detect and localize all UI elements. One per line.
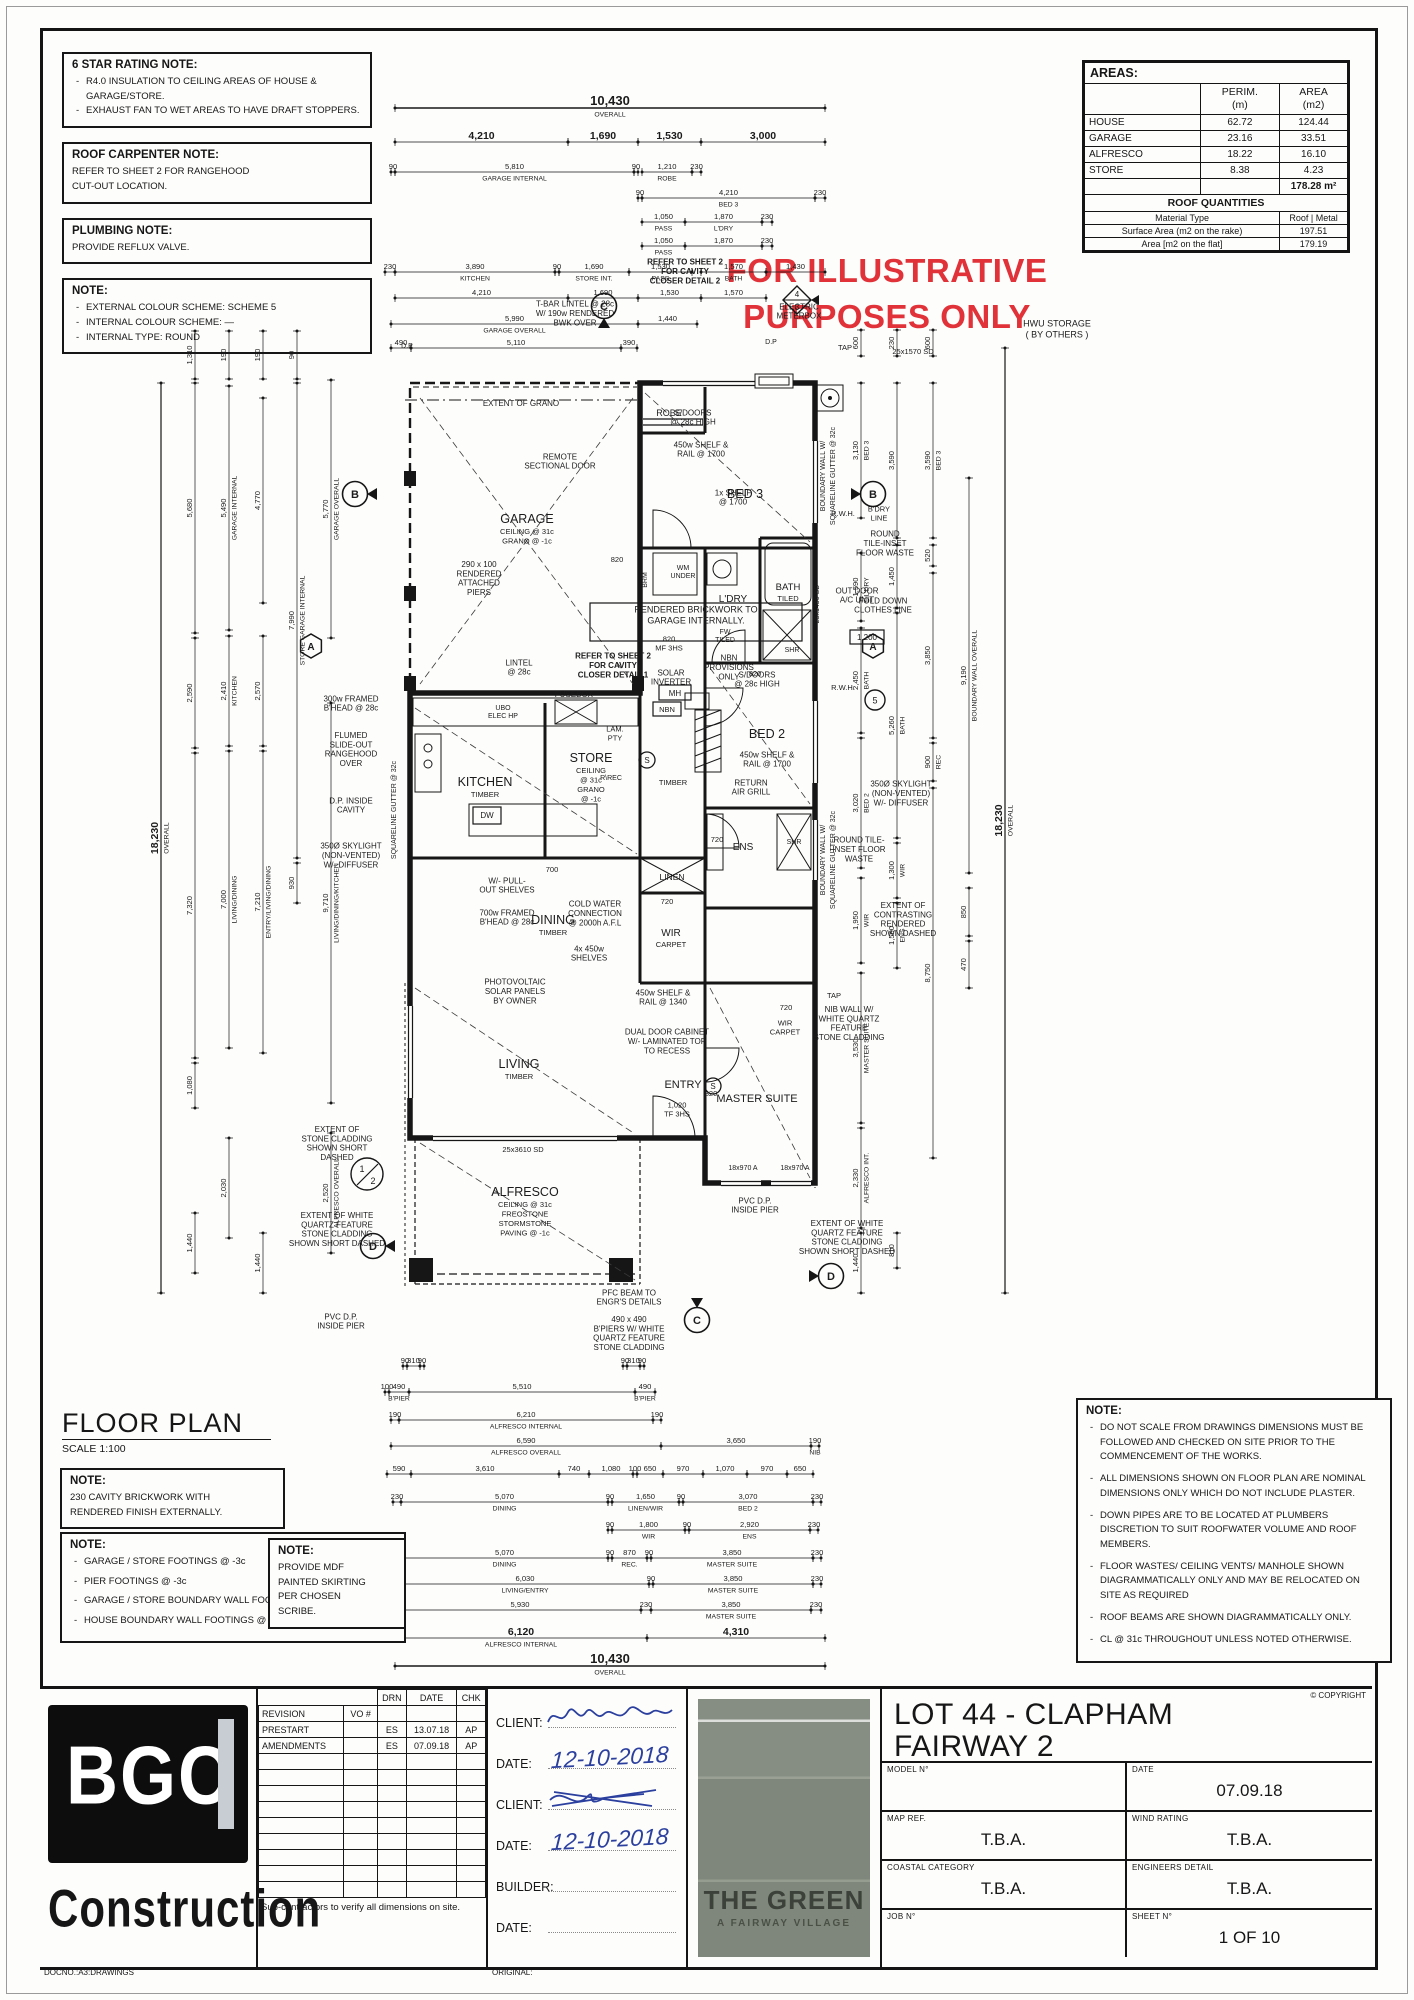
marker-letter: B <box>351 489 359 501</box>
dim-label: 930 <box>287 877 296 890</box>
dim-sublabel: KITCHEN <box>460 276 490 283</box>
revision-row: PRESTARTES13.07.18AP <box>259 1722 486 1738</box>
dim-label: 1,530 <box>656 130 682 142</box>
marker-letter: C <box>600 301 608 313</box>
project-field-label: ENGINEERS DETAIL <box>1132 1863 1214 1872</box>
annotation: S/DOORS@ 28c HIGH <box>670 408 716 426</box>
dim-label: 230 <box>810 1600 823 1609</box>
dim-sublabel: L'DRY <box>864 577 871 597</box>
project-field-label: SHEET N° <box>1132 1912 1172 1921</box>
note-skirting-body: PROVIDE MDFPAINTED SKIRTINGPER CHOSENSCR… <box>278 1561 396 1620</box>
annotation: ROUND TILE-INSET FLOORWASTE <box>832 836 885 864</box>
dim-sublabel: BATH <box>725 276 743 283</box>
dim-label: 3,610 <box>475 1464 494 1473</box>
room-sublabel: TIMBER <box>539 928 568 937</box>
original-label: ORIGINAL: <box>492 1968 532 1977</box>
builder-logo-cell: BGC Construction <box>40 1689 258 1967</box>
annotation: R\REC <box>600 775 622 782</box>
dim-label: 5,070 <box>495 1548 514 1557</box>
note-line: SCRIBE. <box>278 1605 396 1620</box>
dim-label: 18,230 <box>149 822 161 854</box>
annotation: 450w SHELF &RAIL @ 1700 <box>740 750 795 768</box>
copyright-text: © COPYRIGHT <box>1310 1691 1366 1700</box>
project-field-label: MODEL N° <box>887 1765 929 1774</box>
marker-letter: B <box>869 489 877 501</box>
dim-label: 230 <box>761 212 774 221</box>
project-field-label: WIND RATING <box>1132 1814 1188 1823</box>
room-sublabel: CEILING <box>576 766 606 775</box>
dim-label: 90 <box>418 1356 426 1365</box>
dim-label: 3,000 <box>750 130 776 142</box>
floor-plan-scale: SCALE 1:100 <box>62 1443 271 1455</box>
dim-sublabel: BATH <box>864 672 871 690</box>
dim-label: 230 <box>690 162 703 171</box>
annotation: COLD WATERCONNECTION@ 2000h A.F.L <box>568 900 622 928</box>
dim-sublabel: ALFRESCO INT. <box>864 1153 871 1204</box>
dim-label: 4,210 <box>719 188 738 197</box>
dim-label: 2,520 <box>321 1183 330 1202</box>
client-field-row: DATE:12-10-2018 <box>496 1818 678 1859</box>
annotation: D.P. INSIDECAVITY <box>329 796 372 814</box>
room-label-master-suite: MASTER SUITE <box>716 1093 797 1105</box>
project-title-line1: LOT 44 - CLAPHAM <box>894 1699 1372 1731</box>
dim-label: 6,210 <box>516 1410 535 1419</box>
dim-sublabel: DINING <box>493 1562 517 1569</box>
project-field-value: 1 OF 10 <box>1127 1928 1372 1948</box>
docno-text: DOCNO.:A3:DRAWINGS <box>44 1968 134 1977</box>
dim-label: 6,030 <box>515 1574 534 1583</box>
dim-sublabel: L'DRY <box>714 226 734 233</box>
dim-label: 1,570 <box>724 288 743 297</box>
dim-label: 230 <box>811 1492 824 1501</box>
areas-total: 178.28 m² <box>1280 179 1348 195</box>
dim-label: 90 <box>606 1520 614 1529</box>
dim-label: 1,690 <box>593 288 612 297</box>
annotation: 820MF 3HS <box>655 635 683 653</box>
room-sublabel: GRANO @ -1c <box>502 537 552 546</box>
marker-letter: 4 <box>795 290 800 299</box>
annotation: 1x SHELF@ 1700 <box>715 488 752 506</box>
dim-label: 5,070 <box>495 1492 514 1501</box>
annotation: 18x970 A <box>780 1165 810 1172</box>
dim-label: 4,210 <box>472 288 491 297</box>
room-label-alfresco: ALFRESCO <box>491 1185 559 1199</box>
dim-sublabel: GARAGE INTERNAL <box>482 176 547 183</box>
dim-label: 190 <box>389 1410 402 1419</box>
dim-label: 90 <box>553 262 561 271</box>
project-field: MAP REF.T.B.A. <box>882 1812 1127 1861</box>
client-sign-cell: CLIENT:DATE:12-10-2018CLIENT:DATE:12-10-… <box>488 1689 688 1967</box>
dim-sublabel: ALFRESCO OVERALL <box>491 1450 561 1457</box>
annotation: HWU STORAGE( BY OTHERS ) <box>1023 319 1091 340</box>
project-field-label: MAP REF. <box>887 1814 926 1823</box>
note-item: DO NOT SCALE FROM DRAWINGS DIMENSIONS MU… <box>1088 1421 1382 1465</box>
room-label-living: LIVING <box>499 1057 540 1071</box>
project-field: COASTAL CATEGORYT.B.A. <box>882 1861 1127 1910</box>
roof-material-label: Material Type <box>1085 212 1280 225</box>
annotation: BRM <box>642 572 649 588</box>
annotation: D.P <box>765 339 777 346</box>
dim-label: 7,990 <box>287 611 296 630</box>
roof-material-value: Roof | Metal <box>1280 212 1348 225</box>
dim-sublabel: ROBE <box>657 176 677 183</box>
dim-label: 7,320 <box>185 896 194 915</box>
estate-logo-cell: THE GREEN A FAIRWAY VILLAGE <box>688 1689 882 1967</box>
project-field-value: T.B.A. <box>882 1879 1125 1899</box>
annotation: 700w FRAMEDB'HEAD @ 28c <box>479 908 534 926</box>
dim-sublabel: OVERALL <box>594 1670 626 1677</box>
drawing-sheet: 6 STAR RATING NOTE:R4.0 INSULATION TO CE… <box>0 0 1414 2000</box>
dim-label: 2,030 <box>219 1178 228 1197</box>
room-sublabel: @ 31c <box>580 776 602 785</box>
annotation: 450w SHELF &RAIL @ 1340 <box>636 988 691 1006</box>
the-green-logo: THE GREEN A FAIRWAY VILLAGE <box>698 1699 870 1957</box>
client-signature <box>544 1702 684 1732</box>
dim-sublabel: OVERALL <box>594 112 626 119</box>
dim-label: 490 <box>639 1382 652 1391</box>
dim-sublabel: BOUNDARY WALL OVERALL <box>972 630 979 722</box>
dim-sublabel: ENTRY/LIVING/DINING <box>266 866 273 939</box>
annotation: NIB WALL W/WHITE QUARTZFEATURESTONE CLAD… <box>814 1005 885 1042</box>
annotation: DUAL DOOR CABINETW/- LAMINATED TOPTO REC… <box>625 1028 709 1056</box>
revision-table-cell: DRNDATECHKREVISIONVO #PRESTARTES13.07.18… <box>258 1689 488 1967</box>
dim-label: 1,690 <box>590 130 616 142</box>
project-field-value: T.B.A. <box>1127 1830 1372 1850</box>
dim-label: 1,210 <box>657 162 676 171</box>
project-field-label: DATE <box>1132 1765 1154 1774</box>
dim-label: 90 <box>645 1548 653 1557</box>
roof-row: Area [m2 on the flat]179.19 <box>1085 238 1348 251</box>
dim-sublabel: STORE GARAGE INTERNAL <box>300 575 307 665</box>
project-field: SHEET N°1 OF 10 <box>1127 1910 1372 1957</box>
dim-label: 970 <box>761 1464 774 1473</box>
annotation: SHR <box>785 647 800 654</box>
project-field: JOB N° <box>882 1910 1127 1957</box>
dim-label: 90 <box>632 162 640 171</box>
dim-label: 600 <box>851 337 860 350</box>
client-field-row: CLIENT: <box>496 1695 678 1736</box>
dim-sublabel: LINEN/WIR <box>628 1506 663 1513</box>
room-sublabel: STORMSTONE <box>499 1219 552 1228</box>
dim-label: 100 <box>381 1382 394 1391</box>
client-signature <box>544 1784 684 1814</box>
project-info-cell: © COPYRIGHT LOT 44 - CLAPHAM FAIRWAY 2 M… <box>882 1689 1372 1967</box>
annotation: PVC D.P.INSIDE PIER <box>317 1312 365 1330</box>
dim-sublabel: OVERALL <box>164 822 171 854</box>
dim-sublabel: BED 3 <box>864 440 871 460</box>
bgc-logo-bar <box>218 1719 234 1829</box>
dim-label: 870 <box>623 1548 636 1557</box>
dim-label: 3,890 <box>465 262 484 271</box>
project-title: LOT 44 - CLAPHAM FAIRWAY 2 <box>882 1689 1372 1763</box>
dim-sublabel: ALFRESCO INTERNAL <box>490 1424 562 1431</box>
dim-label: 90 <box>606 1548 614 1557</box>
dim-label: 1,530 <box>660 288 679 297</box>
dim-sublabel: WIR <box>864 914 871 927</box>
dim-sublabel: KITCHEN <box>232 676 239 706</box>
client-field-line[interactable] <box>548 1891 676 1892</box>
annotation: FLUMEDSLIDE-OUTRANGEHOODOVER <box>325 731 378 768</box>
client-field-label: DATE: <box>496 1757 532 1771</box>
room-label-entry: ENTRY <box>664 1079 702 1091</box>
dim-sublabel: REC. <box>621 1562 637 1569</box>
dim-label: 3,530 <box>851 1038 860 1057</box>
dim-label: 90 <box>647 1574 655 1583</box>
project-field-label: COASTAL CATEGORY <box>887 1863 975 1872</box>
dim-label: 1,430 <box>786 262 805 271</box>
annotation: 490 x 490B'PIERS W/ WHITEQUARTZ FEATURES… <box>593 1315 665 1352</box>
dim-label: 2,590 <box>185 683 194 702</box>
annotation: 450w SHELF &RAIL @ 1700 <box>674 440 729 458</box>
dim-label: 590 <box>393 1464 406 1473</box>
annotation: 25x1450 SD <box>814 585 821 624</box>
dim-label: 2,330 <box>851 1168 860 1187</box>
dim-label: 230 <box>640 1600 653 1609</box>
dim-sublabel: BED 2 <box>738 1506 758 1513</box>
dim-sublabel: MASTER SUITE <box>707 1562 758 1569</box>
marker-letter: C <box>693 1315 701 1327</box>
revision-row: AMENDMENTSES07.09.18AP <box>259 1738 486 1754</box>
project-field: MODEL N° <box>882 1763 1127 1812</box>
dim-label: 3,850 <box>723 1574 742 1583</box>
dim-label: 850 <box>959 906 968 919</box>
dim-sublabel: ALFRESCO OVERALL <box>334 1158 341 1228</box>
note-line: PAINTED SKIRTING <box>278 1576 396 1591</box>
annotation: TAP <box>827 991 841 1000</box>
dim-label: 6,590 <box>516 1436 535 1445</box>
dim-label: 7,000 <box>219 890 228 909</box>
dim-sublabel: B'PIER <box>634 1396 656 1403</box>
dim-label: 2,410 <box>219 681 228 700</box>
dim-label: 390 <box>623 338 636 347</box>
annotation: BOUNDARY WALL W/ <box>820 825 827 895</box>
floor-plan-title: FLOOR PLAN <box>62 1408 271 1440</box>
dim-sublabel: STORE INT. <box>575 276 612 283</box>
room-sublabel: TIMBER <box>505 1072 534 1081</box>
project-field-value: T.B.A. <box>1127 1879 1372 1899</box>
dim-label: 190 <box>809 1436 822 1445</box>
client-field-row: CLIENT: <box>496 1777 678 1818</box>
dim-label: 740 <box>568 1464 581 1473</box>
note-item: ALL DIMENSIONS SHOWN ON FLOOR PLAN ARE N… <box>1088 1472 1382 1501</box>
the-green-title: THE GREEN <box>704 1885 865 1916</box>
annotation: SQUARELINE GUTTER @ 32c <box>830 426 837 525</box>
floor-plan-heading: FLOOR PLAN SCALE 1:100 <box>62 1408 271 1455</box>
dim-sublabel: BED 3 <box>936 450 943 470</box>
annotation: 1,020TF 3HS <box>664 1101 690 1119</box>
note-line: PROVIDE MDF <box>278 1561 396 1576</box>
dim-label: 1,070 <box>715 1464 734 1473</box>
annotation: SQUARELINE GUTTER @ 32c <box>830 810 837 909</box>
project-field: DATE07.09.18 <box>1127 1763 1372 1812</box>
annotation: LAM.PTY <box>606 725 624 743</box>
note-skirting: NOTE: PROVIDE MDFPAINTED SKIRTINGPER CHO… <box>268 1538 406 1629</box>
roof-quantities-title: ROOF QUANTITIES <box>1085 195 1348 212</box>
marker-letter: 2 <box>370 1176 375 1186</box>
annotation: PHOTOVOLTAICSOLAR PANELSBY OWNER <box>484 978 546 1006</box>
dim-label: 1,050 <box>654 236 673 245</box>
dim-sublabel: ENS <box>743 1534 757 1541</box>
dim-label: 90 <box>606 1492 614 1501</box>
dim-label: 100 <box>629 1464 642 1473</box>
client-field-label: BUILDER: <box>496 1880 554 1894</box>
annotation: DW <box>480 811 494 820</box>
dim-label: 3,070 <box>738 1492 757 1501</box>
dim-label: 190 <box>253 349 262 362</box>
room-sublabel: TILED <box>777 594 799 603</box>
project-field: ENGINEERS DETAILT.B.A. <box>1127 1861 1372 1910</box>
areas-title: AREAS: <box>1085 63 1348 84</box>
dim-label: 190 <box>219 349 228 362</box>
dim-sublabel: LIVING/DINING/KITCHEN <box>334 863 341 943</box>
dim-sublabel: LIVING/DINING <box>232 876 239 924</box>
dim-sublabel: WIR <box>900 864 907 877</box>
client-field-line[interactable] <box>548 1932 676 1933</box>
note-line: PER CHOSEN <box>278 1590 396 1605</box>
dim-label: 4,310 <box>723 1626 749 1638</box>
annotation: FOLD DOWNCLOTHES LINE <box>854 596 912 614</box>
dim-label: 10,430 <box>590 93 630 108</box>
areas-row: HOUSE62.72124.44 <box>1085 115 1348 131</box>
roof-row: Surface Area (m2 on the rake)197.51 <box>1085 225 1348 238</box>
dim-label: 190 <box>651 1410 664 1419</box>
dim-label: 230 <box>391 1492 404 1501</box>
note-item: DOWN PIPES ARE TO BE LOCATED AT PLUMBERS… <box>1088 1509 1382 1553</box>
dim-label: 520 <box>923 549 932 562</box>
areas-row: ALFRESCO18.2216.10 <box>1085 147 1348 163</box>
the-green-tagline: A FAIRWAY VILLAGE <box>717 1918 851 1929</box>
room-sublabel: FREOSTONE <box>502 1210 549 1219</box>
dim-label: 1,440 <box>253 1253 262 1272</box>
dim-label: 3,130 <box>851 441 860 460</box>
annotation: EXTENT OFSTONE CLADDINGSHOWN SHORTDASHED <box>302 1125 373 1162</box>
dim-label: 1,310 <box>185 345 194 364</box>
annotation: 820 <box>749 669 762 678</box>
dim-label: 3,590 <box>923 451 932 470</box>
dim-sublabel: BED 2 <box>864 793 871 813</box>
dim-label: 230 <box>761 236 774 245</box>
subcontractor-note: Sub-contractors to verify all dimensions… <box>258 1898 486 1913</box>
client-field-row: DATE: <box>496 1900 678 1941</box>
client-field-label: CLIENT: <box>496 1798 543 1812</box>
dim-label: 1,870 <box>714 212 733 221</box>
handwritten-date: 12-10-2018 <box>550 1823 669 1856</box>
dim-sublabel: MASTER SUITE <box>708 1588 759 1595</box>
dim-sublabel: LIVING/ENTRY <box>501 1588 549 1595</box>
areas-row: GARAGE23.1633.51 <box>1085 131 1348 147</box>
dim-label: 650 <box>794 1464 807 1473</box>
note-brickwork-body: 230 CAVITY BRICKWORK WITHRENDERED FINISH… <box>70 1491 275 1520</box>
bgc-logo-text: BGC <box>66 1729 232 1823</box>
dim-label: 230 <box>811 1574 824 1583</box>
client-field-row: DATE:12-10-2018 <box>496 1736 678 1777</box>
dim-label: 1,440 <box>185 1233 194 1252</box>
room-sublabel: CEILING @ 31c <box>498 1200 552 1209</box>
annotation: W/- PULL-OUT SHELVES <box>479 876 534 894</box>
dim-label: 1,560 <box>887 926 896 945</box>
dim-label: 1,440 <box>851 1253 860 1272</box>
dim-label: 600 <box>923 337 932 350</box>
dim-label: 490 <box>395 338 408 347</box>
dim-label: 5,810 <box>505 162 524 171</box>
dim-label: 230 <box>384 262 397 271</box>
dim-sublabel: NIB <box>809 1450 821 1457</box>
annotation: FWTILED <box>715 629 735 644</box>
dim-label: 5,990 <box>505 314 524 323</box>
dim-label: 90 <box>287 351 296 359</box>
annotation: PVC D.P.INSIDE PIER <box>731 1196 779 1214</box>
dim-label: 18,230 <box>993 804 1005 836</box>
note-line: 230 CAVITY BRICKWORK WITH <box>70 1491 275 1506</box>
annotation: 700 <box>546 865 559 874</box>
dim-label: 230 <box>811 1548 824 1557</box>
annotation: 720 <box>711 835 724 844</box>
annotation: UBOELEC HP <box>488 705 518 720</box>
dim-label: 6,120 <box>508 1626 534 1638</box>
project-field-value: T.B.A. <box>882 1830 1125 1850</box>
annotation: BOUNDARY WALL W/ <box>820 441 827 511</box>
revision-table: DRNDATECHKREVISIONVO #PRESTARTES13.07.18… <box>258 1689 486 1898</box>
dim-label: 90 <box>677 1492 685 1501</box>
room-sublabel: CARPET <box>656 940 687 949</box>
annotation: LINTEL@ 28c <box>505 658 533 676</box>
dim-label: 1,050 <box>654 212 673 221</box>
dim-sublabel: BED 3 <box>719 202 739 209</box>
note-skirting-title: NOTE: <box>278 1545 396 1557</box>
title-block: BGC Construction DRNDATECHKREVISIONVO #P… <box>40 1686 1372 1967</box>
dim-label: 8,750 <box>923 963 932 982</box>
dim-sublabel: ENS <box>900 928 907 942</box>
annotation: SQUARELINE GUTTER @ 32c <box>391 760 398 859</box>
room-sublabel: GRANO <box>577 785 605 794</box>
dim-label: 1,080 <box>185 1076 194 1095</box>
areas-col-perim: PERIM.(m) <box>1200 84 1279 115</box>
room-sublabel: CEILING @ 31c <box>500 527 554 536</box>
marker-letter: 5 <box>872 696 877 706</box>
annotation: 350Ø SKYLIGHT(NON-VENTED)W/- DIFFUSER <box>320 842 381 870</box>
note-item: FLOOR WASTES/ CEILING VENTS/ MANHOLE SHO… <box>1088 1560 1382 1604</box>
dim-label: 1,650 <box>636 1492 655 1501</box>
dim-label: 3,650 <box>726 1436 745 1445</box>
marker-letter: A <box>307 642 314 653</box>
dim-label: 5,680 <box>185 498 194 517</box>
annotation: 25x3610 SD <box>502 1145 544 1154</box>
room-label-kitchen: KITCHEN <box>458 775 513 789</box>
fixtures <box>413 374 843 893</box>
note-item: ROOF BEAMS ARE SHOWN DIAGRAMMATICALLY ON… <box>1088 1611 1382 1626</box>
marker-letter: D <box>369 1241 377 1253</box>
dim-label: 5,510 <box>512 1382 531 1391</box>
dim-label: 2,920 <box>740 1520 759 1529</box>
dim-sublabel: MASTER SUITE <box>706 1614 757 1621</box>
dim-label: 4,770 <box>253 491 262 510</box>
areas-row: STORE8.384.23 <box>1085 163 1348 179</box>
project-field-value: 07.09.18 <box>1127 1781 1372 1801</box>
dim-label: 5,930 <box>510 1600 529 1609</box>
annotation: B'DRYLINE <box>868 505 890 523</box>
dim-label: 5,490 <box>219 498 228 517</box>
dim-label: 7,210 <box>253 892 262 911</box>
annotation: 18x970 A <box>728 1165 758 1172</box>
annotation: 350Ø SKYLIGHT(NON-VENTED)W/- DIFFUSER <box>870 780 931 808</box>
client-field-row: BUILDER: <box>496 1859 678 1900</box>
dim-label: 1,590 <box>851 577 860 596</box>
dim-label: 2,570 <box>253 681 262 700</box>
dim-label: 1,800 <box>639 1520 658 1529</box>
annotation: 720 <box>661 897 674 906</box>
annotation: 720 <box>780 1003 793 1012</box>
dim-label: 3,850 <box>923 646 932 665</box>
